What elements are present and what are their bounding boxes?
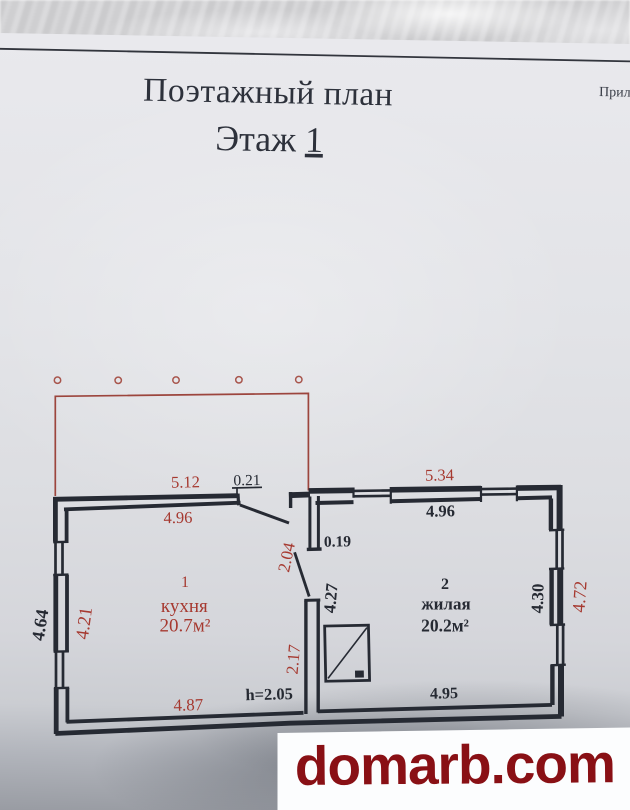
svg-text:20.2м²: 20.2м² bbox=[421, 615, 469, 635]
svg-text:2: 2 bbox=[441, 576, 449, 593]
svg-text:5.34: 5.34 bbox=[425, 465, 454, 485]
svg-text:4.21: 4.21 bbox=[73, 606, 97, 641]
svg-text:4.27: 4.27 bbox=[320, 582, 342, 614]
svg-text:жилая: жилая bbox=[421, 594, 470, 613]
svg-text:0.19: 0.19 bbox=[324, 533, 352, 550]
svg-text:4.30: 4.30 bbox=[528, 583, 548, 613]
svg-text:4.96: 4.96 bbox=[426, 501, 455, 521]
svg-text:h=2.05: h=2.05 bbox=[245, 684, 293, 704]
svg-text:2.17: 2.17 bbox=[283, 643, 305, 675]
svg-text:2.04: 2.04 bbox=[274, 540, 299, 574]
svg-text:Прил: Прил bbox=[599, 85, 630, 101]
svg-text:20.7м²: 20.7м² bbox=[160, 616, 211, 637]
svg-text:4.95: 4.95 bbox=[430, 685, 458, 703]
svg-text:1: 1 bbox=[181, 574, 189, 591]
svg-text:кухня: кухня bbox=[161, 596, 208, 617]
svg-text:4.64: 4.64 bbox=[28, 608, 53, 642]
svg-text:4.72: 4.72 bbox=[568, 580, 590, 613]
svg-text:domarb.com: domarb.com bbox=[295, 732, 616, 797]
svg-text:Поэтажный план: Поэтажный план bbox=[143, 72, 394, 114]
svg-text:5.12: 5.12 bbox=[171, 472, 200, 492]
svg-text:4.87: 4.87 bbox=[173, 695, 204, 715]
svg-text:4.96: 4.96 bbox=[163, 508, 192, 528]
svg-text:Этаж 1: Этаж 1 bbox=[215, 118, 324, 160]
